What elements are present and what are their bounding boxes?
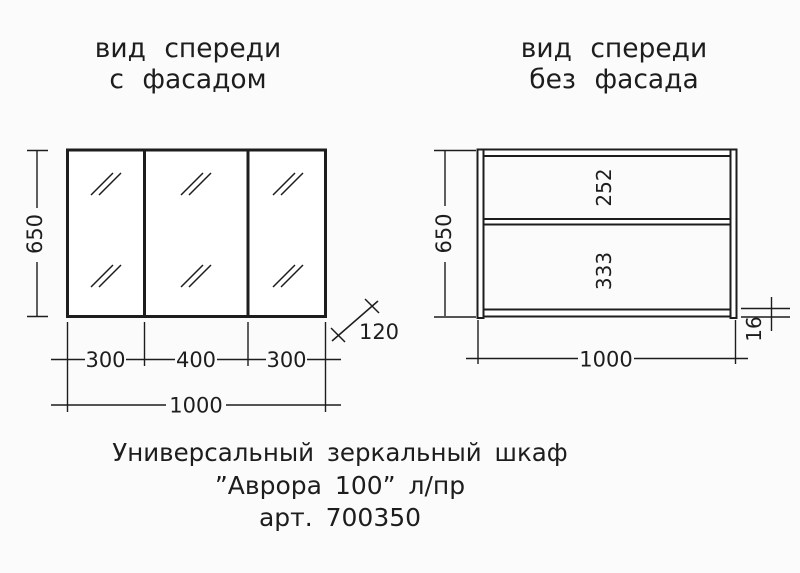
panel-thickness-label: 16 xyxy=(742,316,766,341)
right-width-dimension: 1000 xyxy=(466,320,748,372)
height-dimension-label: 650 xyxy=(432,213,456,253)
product-model: ”Аврора 100” л/пр xyxy=(215,471,465,500)
right-height-dimension: 650 xyxy=(432,151,476,318)
side-panel-left xyxy=(478,150,484,319)
cabinet-body-outline xyxy=(68,150,326,317)
side-panel-right xyxy=(731,150,737,319)
middle-shelf xyxy=(484,219,731,225)
height-dimension-label: 650 xyxy=(23,214,47,254)
right-view-title-line2: без фасада xyxy=(529,64,698,95)
bottom-panel xyxy=(484,310,731,317)
front-view-with-facade-drawing: 650 300 400 300 1000 120 xyxy=(23,150,399,418)
upper-section-height-label: 252 xyxy=(592,168,616,206)
cabinet-technical-drawing: вид спереди с фасадом вид спереди без фа… xyxy=(0,0,800,573)
left-height-dimension: 650 xyxy=(23,151,48,317)
depth-dimension-label: 120 xyxy=(359,320,399,344)
panel-thickness-dimension: 16 xyxy=(741,297,790,342)
right-view-title-line1: вид спереди xyxy=(521,33,707,64)
product-article-number: арт. 700350 xyxy=(259,503,421,532)
product-name: Универсальный зеркальный шкаф xyxy=(112,438,567,467)
door-left-width-label: 300 xyxy=(85,348,125,372)
depth-dimension: 120 xyxy=(331,299,399,344)
door-center-width-label: 400 xyxy=(176,348,216,372)
product-caption: Универсальный зеркальный шкаф ”Аврора 10… xyxy=(112,438,567,532)
total-width-label: 1000 xyxy=(169,394,222,418)
left-view-title-line2: с фасадом xyxy=(109,64,266,95)
left-width-dimensions: 300 400 300 1000 xyxy=(51,322,341,418)
lower-section-height-label: 333 xyxy=(592,252,616,290)
door-right-width-label: 300 xyxy=(266,348,306,372)
right-view-title: вид спереди без фасада xyxy=(521,33,707,95)
left-view-title-line1: вид спереди xyxy=(95,33,281,64)
front-view-without-facade-drawing: 650 252 333 1000 16 xyxy=(432,150,790,372)
total-width-label: 1000 xyxy=(579,348,632,372)
left-view-title: вид спереди с фасадом xyxy=(95,33,281,95)
top-panel xyxy=(484,150,731,157)
